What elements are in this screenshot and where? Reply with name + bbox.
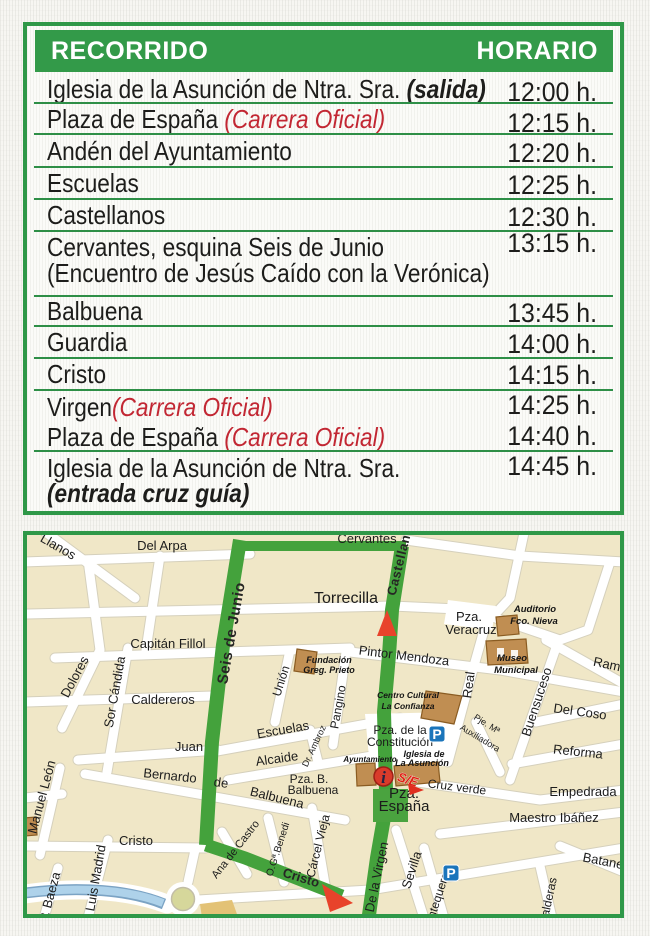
svg-text:España: España: [379, 798, 431, 815]
svg-text:La Confianza: La Confianza: [382, 701, 435, 711]
svg-text:Ayuntamiento: Ayuntamiento: [342, 755, 396, 764]
svg-text:Fundación: Fundación: [306, 655, 352, 665]
svg-text:Veracruz: Veracruz: [445, 622, 496, 637]
svg-text:Cristo: Cristo: [119, 833, 153, 848]
svg-text:Auditorio: Auditorio: [513, 604, 556, 615]
svg-text:Greg. Prieto: Greg. Prieto: [303, 665, 355, 675]
svg-text:Municipal: Municipal: [494, 665, 538, 676]
svg-text:Maestro Ibáñez: Maestro Ibáñez: [509, 810, 599, 825]
svg-text:Empedrada: Empedrada: [549, 784, 617, 799]
svg-text:Caldereros: Caldereros: [131, 692, 195, 707]
svg-text:Torrecilla: Torrecilla: [314, 590, 378, 607]
svg-text:Juan: Juan: [175, 739, 203, 754]
svg-text:La Asunción: La Asunción: [395, 758, 449, 768]
svg-text:P: P: [432, 726, 441, 742]
svg-text:Centro Cultural: Centro Cultural: [377, 690, 440, 700]
svg-text:Constitución: Constitución: [367, 735, 433, 749]
svg-text:Del Arpa: Del Arpa: [137, 538, 188, 553]
svg-text:de: de: [213, 774, 229, 791]
svg-text:Capitán Fillol: Capitán Fillol: [130, 636, 205, 651]
svg-text:Balbuena: Balbuena: [288, 783, 339, 797]
svg-text:Museo: Museo: [497, 653, 527, 664]
svg-text:i: i: [381, 768, 386, 787]
svg-text:P: P: [446, 865, 455, 881]
svg-text:Fco. Nieva: Fco. Nieva: [510, 616, 558, 627]
